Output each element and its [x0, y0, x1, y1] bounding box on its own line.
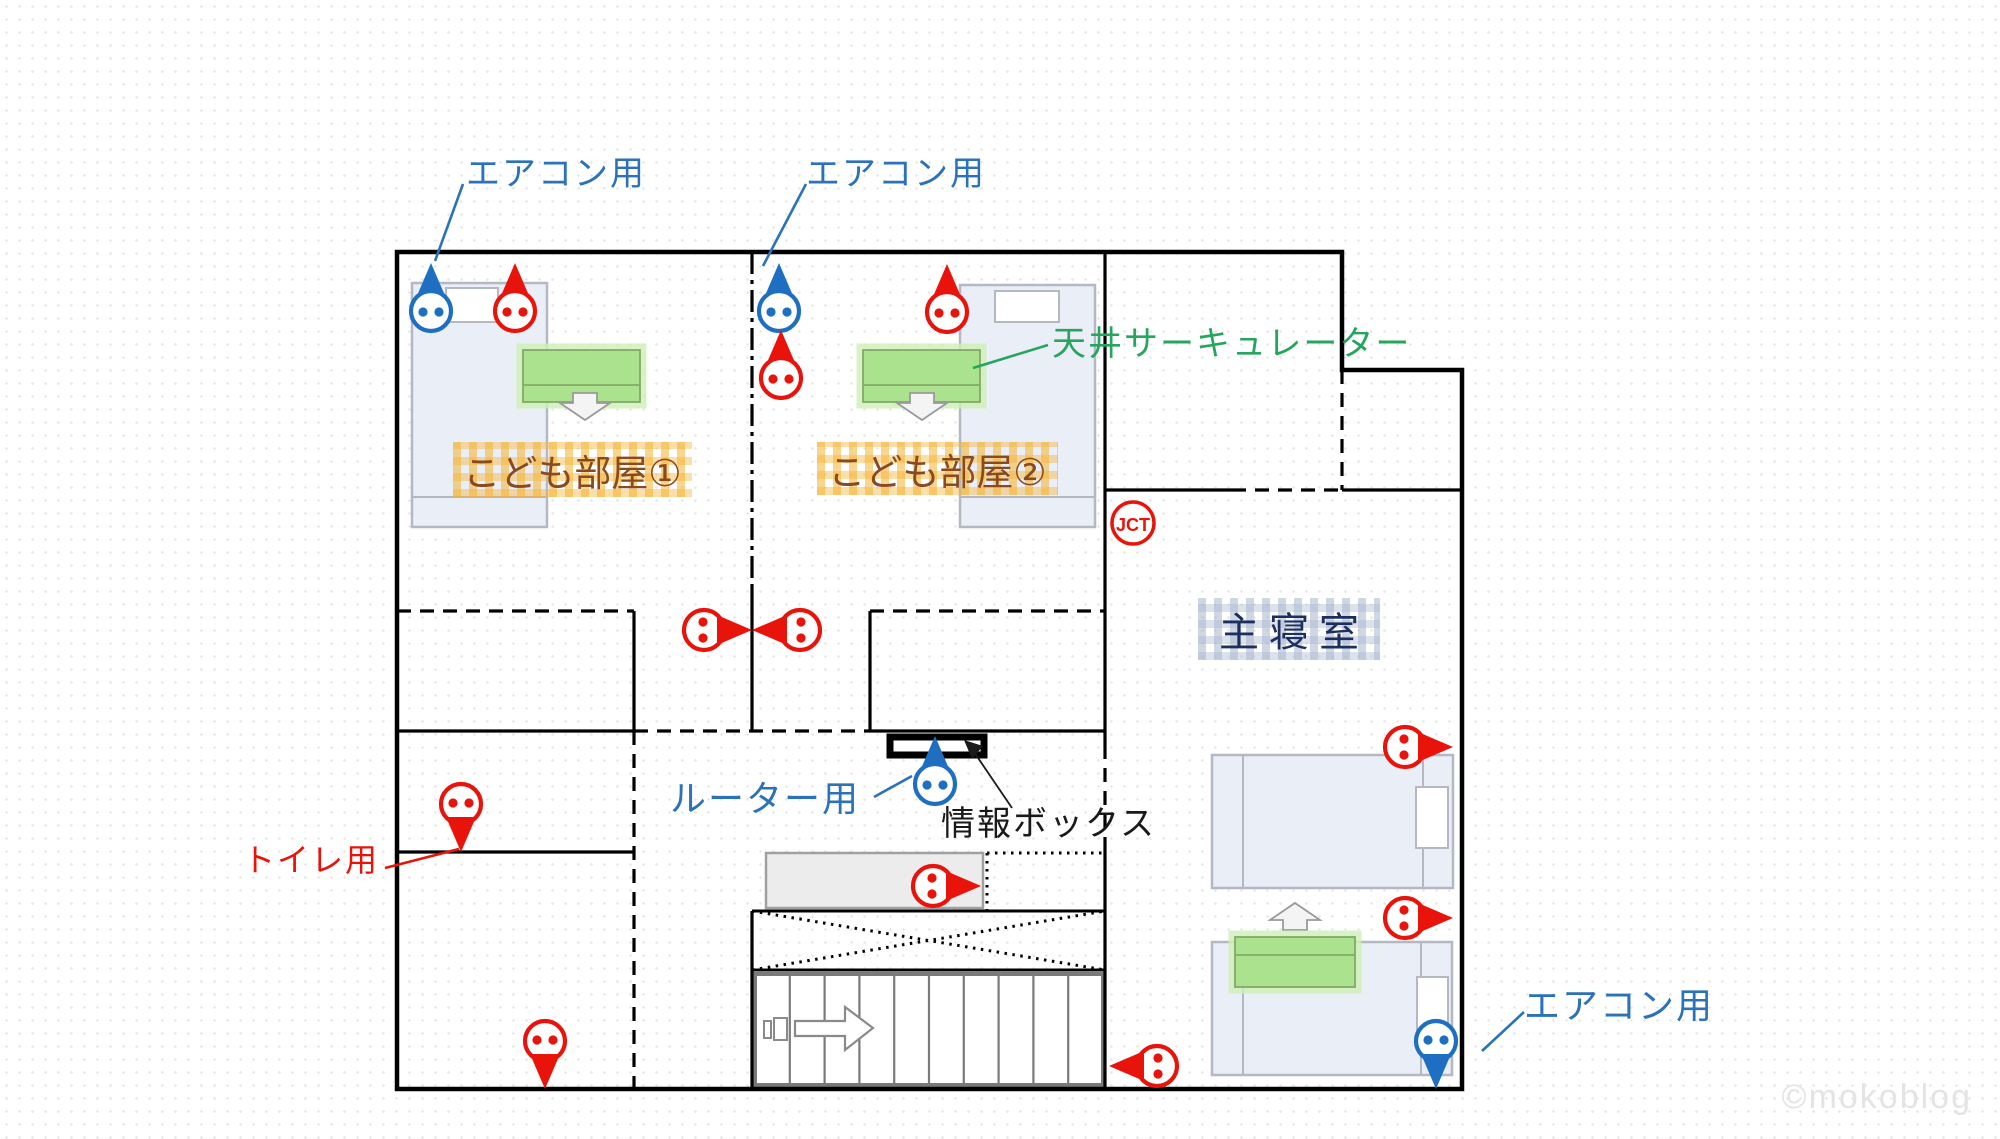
room-label-kids1: こども部屋① [453, 442, 692, 497]
room-label-master: 主寝室 [1198, 598, 1380, 660]
label-aircon-kids1: エアコン用 [466, 156, 646, 193]
pillow [446, 288, 498, 322]
outlet-kids1-partition [684, 610, 752, 650]
pillow [995, 291, 1059, 322]
floor-plan-page: { "title": "2F electrical outlet floor p… [0, 0, 2000, 1139]
junction-box-marker: JCT [1112, 502, 1154, 544]
outlet-hall [1109, 1046, 1177, 1086]
leader-infobox [974, 752, 1012, 808]
outlet-master-aircon [1416, 1021, 1456, 1089]
watermark: ©mokoblog [1782, 1078, 1972, 1117]
arrow-up-icon [1270, 903, 1320, 930]
stairs [755, 974, 1103, 1085]
label-aircon-master: エアコン用 [1524, 986, 1714, 1026]
junction-label: JCT [1116, 515, 1150, 535]
master-bed-1 [1212, 755, 1453, 888]
master-cabinet [1233, 903, 1357, 989]
outlet-kids1-wall [495, 263, 535, 331]
room-label-kids2: こども部屋② [817, 442, 1058, 495]
outlet-kids2-aircon [759, 263, 799, 331]
label-info-box: 情報ボックス [941, 806, 1156, 843]
dotted-boundary [987, 853, 1105, 911]
outlet-washroom [525, 1021, 565, 1089]
floor-plan-canvas: JCT [0, 0, 2000, 1139]
leader-aircon-kids1 [435, 184, 463, 261]
outlet-kids1-aircon [411, 263, 451, 331]
stair-start-mark [774, 1018, 787, 1040]
stair-start-mark [764, 1021, 771, 1038]
room-label-kids2-text: こども部屋② [828, 442, 1046, 496]
room-label-kids1-text: こども部屋① [463, 443, 681, 497]
outlet-kids2-partition [752, 610, 820, 650]
label-ceiling-circulator: 天井サーキュレーター [1052, 326, 1411, 363]
leader-router [874, 776, 912, 797]
outlet-kids2-wall-a [761, 330, 801, 398]
outlet-kids2-wall-b [927, 264, 967, 332]
stair-void [752, 911, 1105, 970]
void-cross-lines [752, 911, 1105, 970]
label-router: ルーター用 [670, 779, 860, 819]
outlet-toilet [441, 784, 481, 852]
room-label-master-text: 主寝室 [1209, 600, 1369, 658]
outlet-master-wall-b [1385, 898, 1453, 938]
leader-aircon-master [1482, 1012, 1524, 1051]
pillow [1416, 787, 1448, 848]
label-aircon-kids2: エアコン用 [806, 156, 986, 193]
label-toilet: トイレ用 [243, 843, 379, 878]
